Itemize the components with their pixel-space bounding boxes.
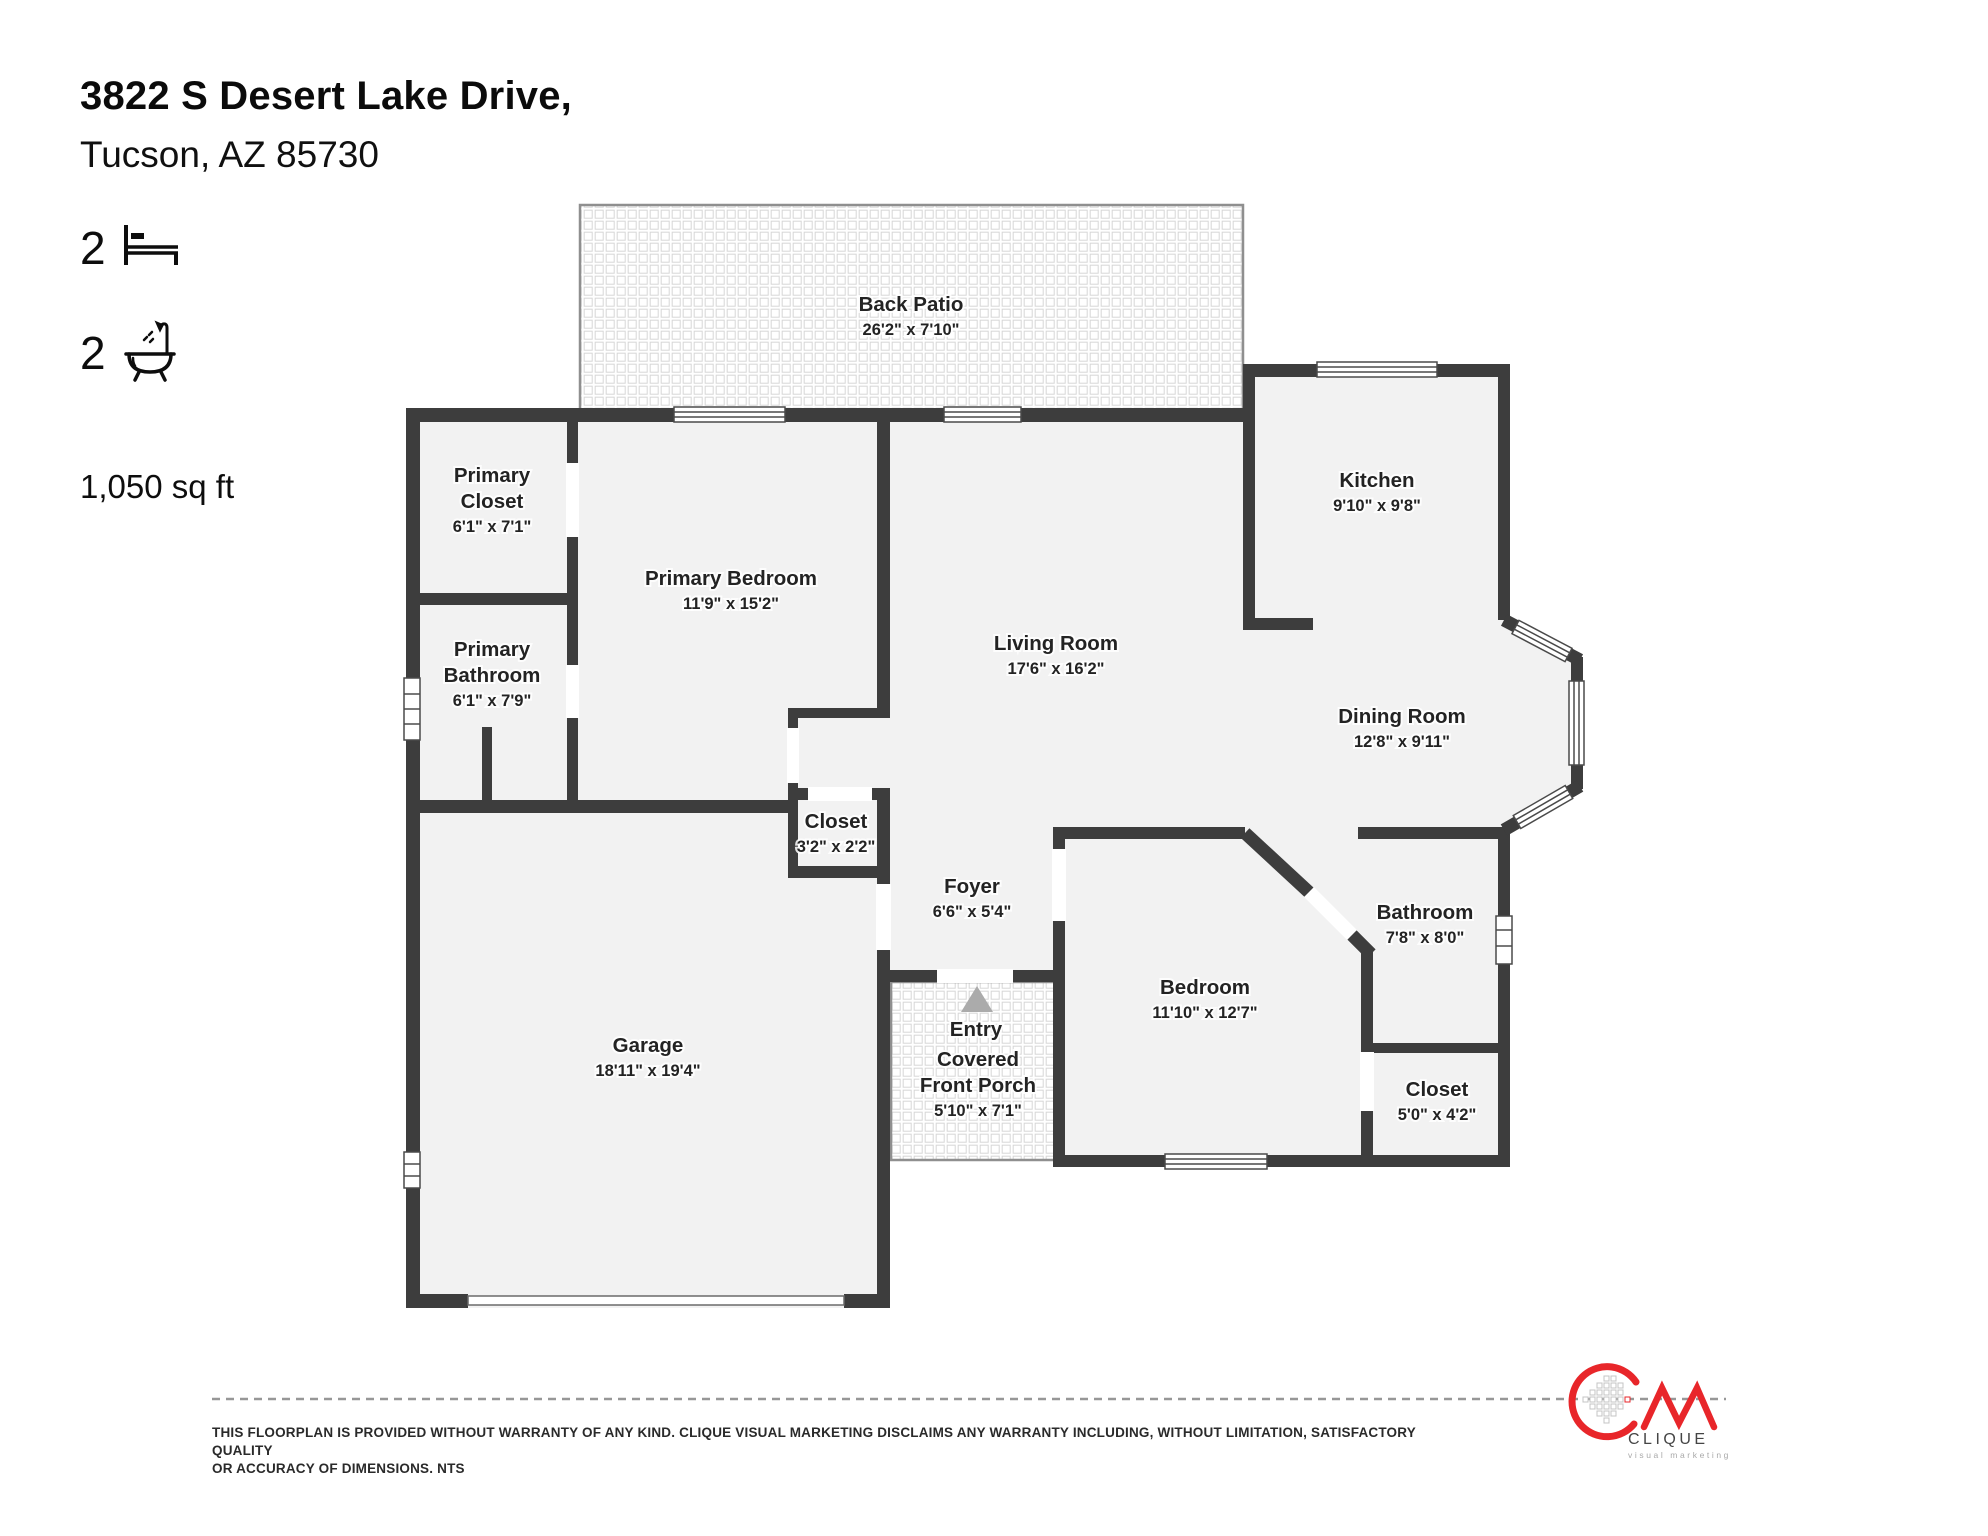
address-city: Tucson, AZ 85730 <box>80 134 379 176</box>
svg-text:Bathroom: Bathroom <box>444 664 541 687</box>
svg-text:Garage: Garage <box>613 1034 684 1057</box>
address-title: 3822 S Desert Lake Drive, <box>80 74 572 119</box>
svg-text:Closet: Closet <box>461 490 524 513</box>
svg-text:6'6" x 5'4": 6'6" x 5'4" <box>933 903 1012 921</box>
svg-text:Living Room: Living Room <box>994 632 1118 655</box>
svg-text:17'6" x 16'2": 17'6" x 16'2" <box>1008 660 1105 678</box>
svg-text:Front Porch: Front Porch <box>920 1074 1036 1097</box>
primary-closet-label: PrimaryCloset6'1" x 7'1" <box>453 464 532 536</box>
svg-text:26'2" x 7'10": 26'2" x 7'10" <box>863 321 960 339</box>
svg-text:Primary: Primary <box>454 638 531 661</box>
svg-text:Primary Bedroom: Primary Bedroom <box>645 567 817 590</box>
garage-door <box>468 1296 844 1305</box>
svg-text:Bathroom: Bathroom <box>1377 901 1474 924</box>
svg-text:Foyer: Foyer <box>944 875 1000 898</box>
svg-text:Closet: Closet <box>805 810 868 833</box>
svg-text:11'9" x 15'2": 11'9" x 15'2" <box>683 595 779 613</box>
svg-text:11'10" x 12'7": 11'10" x 12'7" <box>1152 1004 1257 1022</box>
primary-bathroom-label: PrimaryBathroom6'1" x 7'9" <box>444 638 541 710</box>
svg-text:9'10" x 9'8": 9'10" x 9'8" <box>1333 497 1421 515</box>
bed-icon <box>122 222 182 273</box>
svg-text:Closet: Closet <box>1406 1078 1469 1101</box>
disclaimer-line2: OR ACCURACY OF DIMENSIONS. NTS <box>212 1460 1472 1478</box>
svg-text:Dining Room: Dining Room <box>1338 705 1466 728</box>
bathtub-icon <box>122 316 178 389</box>
clique-logo: CLIQUE visual marketing <box>1572 1367 1731 1460</box>
svg-text:5'10" x 7'1": 5'10" x 7'1" <box>934 1102 1022 1120</box>
entry-label: Entry <box>950 1018 1003 1041</box>
svg-text:Primary: Primary <box>454 464 531 487</box>
covered-front-porch-label: CoveredFront Porch5'10" x 7'1" <box>920 1048 1036 1120</box>
svg-text:Covered: Covered <box>937 1048 1019 1071</box>
svg-text:6'1" x 7'1": 6'1" x 7'1" <box>453 518 532 536</box>
svg-text:Back Patio: Back Patio <box>859 293 964 316</box>
svg-text:6'1" x 7'9": 6'1" x 7'9" <box>453 692 532 710</box>
bedroom-count: 2 <box>80 225 106 271</box>
svg-text:7'8" x 8'0": 7'8" x 8'0" <box>1386 929 1465 947</box>
svg-text:12'8" x 9'11": 12'8" x 9'11" <box>1354 733 1450 751</box>
svg-text:5'0" x 4'2": 5'0" x 4'2" <box>1398 1106 1477 1124</box>
svg-text:Kitchen: Kitchen <box>1339 469 1414 492</box>
logo-tagline-text: visual marketing <box>1628 1450 1731 1460</box>
svg-text:3'2" x 2'2": 3'2" x 2'2" <box>797 838 876 856</box>
logo-brand-text: CLIQUE <box>1628 1431 1709 1448</box>
bedroom-stat: 2 <box>80 222 182 273</box>
disclaimer: THIS FLOORPLAN IS PROVIDED WITHOUT WARRA… <box>212 1424 1472 1478</box>
area-stat: 1,050 sq ft <box>80 468 234 506</box>
svg-text:18'11" x 19'4": 18'11" x 19'4" <box>595 1062 700 1080</box>
svg-text:Bedroom: Bedroom <box>1160 976 1250 999</box>
bathroom-stat: 2 <box>80 316 178 389</box>
floorplan-canvas: Back Patio26'2" x 7'10"PrimaryCloset6'1"… <box>0 0 1988 1536</box>
svg-text:Entry: Entry <box>950 1018 1003 1041</box>
disclaimer-line1: THIS FLOORPLAN IS PROVIDED WITHOUT WARRA… <box>212 1424 1472 1460</box>
bathroom-count: 2 <box>80 330 106 376</box>
